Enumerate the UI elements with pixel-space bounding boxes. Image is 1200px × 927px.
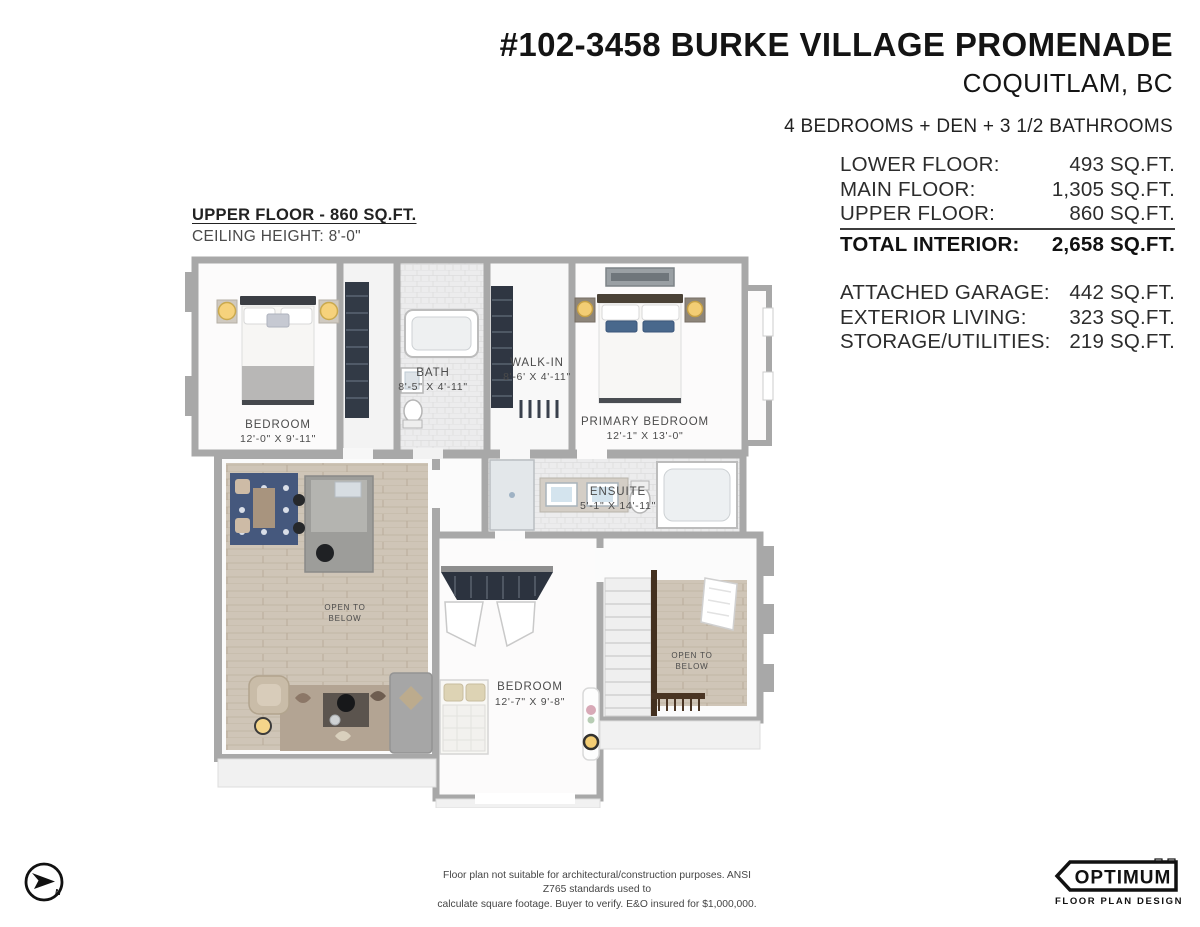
area-row-lower: LOWER FLOOR: 493 SQ.FT. xyxy=(840,153,1175,178)
door-panel xyxy=(701,578,737,630)
compass-north-label: N xyxy=(55,888,61,897)
area-summary: LOWER FLOOR: 493 SQ.FT. MAIN FLOOR: 1,30… xyxy=(840,153,1175,355)
disclaimer-line-2: calculate square footage. Buyer to verif… xyxy=(436,898,758,912)
label-open-below-left-2: BELOW xyxy=(329,614,362,623)
logo-brand-text: OPTIMUM xyxy=(1075,868,1172,889)
lamp-icon xyxy=(688,302,703,317)
lamp-icon xyxy=(584,735,598,749)
label-bedroom-lower: BEDROOM xyxy=(497,681,563,693)
area-value: 442 SQ.FT. xyxy=(1069,281,1175,306)
area-label: UPPER FLOOR: xyxy=(840,202,995,227)
bar-stool xyxy=(293,522,305,534)
configuration-line: 4 BEDROOMS + DEN + 3 1/2 BATHROOMS xyxy=(500,116,1173,138)
area-secondary-group: ATTACHED GARAGE: 442 SQ.FT. EXTERIOR LIV… xyxy=(840,281,1175,355)
label-bath: BATH xyxy=(416,367,449,379)
area-label: EXTERIOR LIVING: xyxy=(840,306,1027,331)
area-value: 1,305 SQ.FT. xyxy=(1052,178,1175,203)
floor-plan-page: #102-3458 BURKE VILLAGE PROMENADE COQUIT… xyxy=(0,0,1200,927)
area-value: 860 SQ.FT. xyxy=(1069,202,1175,227)
dims-ensuite: 5'-1" X 14'-11" xyxy=(580,500,656,512)
dining-chair xyxy=(235,479,250,494)
floor-lamp-icon xyxy=(255,718,271,734)
floor-label-ceiling: CEILING HEIGHT: 8'-0" xyxy=(192,228,417,246)
area-row-upper: UPPER FLOOR: 860 SQ.FT. xyxy=(840,202,1175,230)
toilet xyxy=(404,400,422,422)
dining-chair xyxy=(235,518,250,533)
area-row-garage: ATTACHED GARAGE: 442 SQ.FT. xyxy=(840,281,1175,306)
page-subtitle-city: COQUITLAM, BC xyxy=(500,68,1173,99)
closet-clothes xyxy=(441,572,553,600)
area-label: MAIN FLOOR: xyxy=(840,178,975,203)
area-row-total: TOTAL INTERIOR: 2,658 SQ.FT. xyxy=(840,230,1175,258)
floor-plan-svg: BEDROOM 12'-0" X 9'-11" BATH 8'-5" X 4'-… xyxy=(185,248,800,808)
page-title: #102-3458 BURKE VILLAGE PROMENADE xyxy=(500,28,1173,63)
hallway xyxy=(436,455,485,535)
logo-tagline-text: FLOOR PLAN DESIGNS xyxy=(1055,896,1182,907)
label-open-below-right-1: OPEN TO xyxy=(671,651,712,660)
floor-label: UPPER FLOOR - 860 SQ.FT. CEILING HEIGHT:… xyxy=(192,206,417,246)
lamp-icon xyxy=(578,302,593,317)
label-walk-in: WALK-IN xyxy=(510,357,564,369)
bar-stool xyxy=(293,494,305,506)
area-label: ATTACHED GARAGE: xyxy=(840,281,1050,306)
dims-primary-bedroom: 12'-1" X 13'-0" xyxy=(607,430,684,442)
dims-walk-in: 8'-6' X 4'-11" xyxy=(503,371,571,383)
disclaimer-line-1: Floor plan not suitable for architectura… xyxy=(436,869,758,898)
lamp-icon xyxy=(219,303,236,320)
label-bedroom-left: BEDROOM xyxy=(245,419,311,431)
area-value: 323 SQ.FT. xyxy=(1069,306,1175,331)
area-label: STORAGE/UTILITIES: xyxy=(840,330,1051,355)
area-row-storage: STORAGE/UTILITIES: 219 SQ.FT. xyxy=(840,330,1175,355)
brand-logo: OPTIMUM FLOOR PLAN DESIGNS xyxy=(1054,858,1182,915)
north-compass-icon: N xyxy=(22,859,68,912)
area-row-main: MAIN FLOOR: 1,305 SQ.FT. xyxy=(840,178,1175,203)
stair-railing xyxy=(651,693,705,699)
floor-plan-drawing: BEDROOM 12'-0" X 9'-11" BATH 8'-5" X 4'-… xyxy=(185,248,800,808)
dining-table xyxy=(253,488,275,528)
area-label: TOTAL INTERIOR: xyxy=(840,233,1020,258)
pendant xyxy=(316,544,334,562)
area-value: 2,658 SQ.FT. xyxy=(1052,233,1175,258)
floor-label-title: UPPER FLOOR - 860 SQ.FT. xyxy=(192,206,417,225)
area-label: LOWER FLOOR: xyxy=(840,153,1000,178)
area-row-exterior: EXTERIOR LIVING: 323 SQ.FT. xyxy=(840,306,1175,331)
dims-bedroom-lower: 12'-7" X 9'-8" xyxy=(495,696,565,708)
label-primary-bedroom: PRIMARY BEDROOM xyxy=(581,416,709,428)
dims-bedroom-left: 12'-0" X 9'-11" xyxy=(240,433,316,445)
label-open-below-left-1: OPEN TO xyxy=(324,603,365,612)
area-value: 219 SQ.FT. xyxy=(1069,330,1175,355)
dims-bath: 8'-5" X 4'-11" xyxy=(398,381,468,393)
disclaimer: Floor plan not suitable for architectura… xyxy=(436,869,758,912)
sofa xyxy=(390,673,432,753)
area-value: 493 SQ.FT. xyxy=(1069,153,1175,178)
header: #102-3458 BURKE VILLAGE PROMENADE COQUIT… xyxy=(500,28,1173,138)
label-ensuite: ENSUITE xyxy=(590,486,646,498)
label-open-below-right-2: BELOW xyxy=(676,662,709,671)
closet-clothes xyxy=(345,282,369,418)
lamp-icon xyxy=(321,303,338,320)
